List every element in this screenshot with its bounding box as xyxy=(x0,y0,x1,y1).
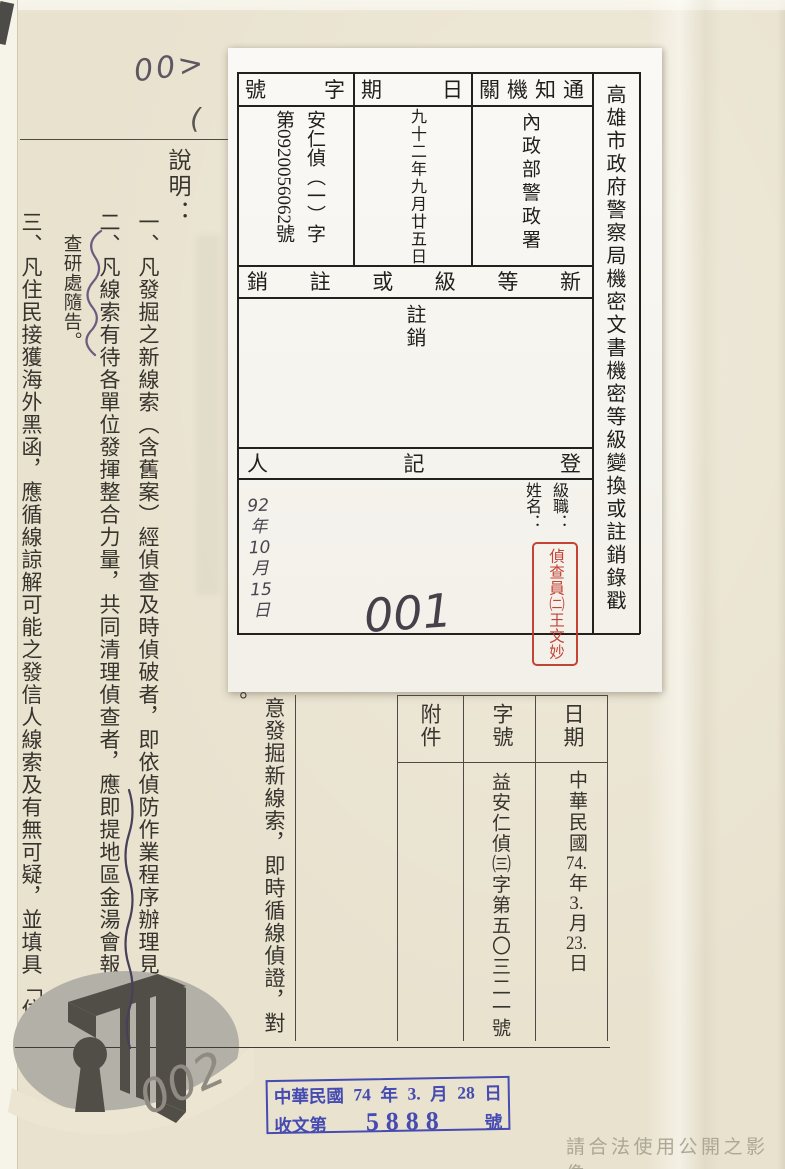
table-docno-value: 益安仁偵㈢字第五〇三二一號 xyxy=(486,772,513,1039)
received-stamp-line2: 收文第 5888 號 xyxy=(268,1105,508,1139)
card-rule xyxy=(353,72,355,265)
card-docno-value: 安仁偵（一）字 第0920056062號 xyxy=(268,110,330,268)
card-header-registrar: 人記登 xyxy=(247,447,581,478)
table-rule xyxy=(607,695,608,1041)
table-date-value: 中華民國74.年3.月23.日 xyxy=(563,770,590,974)
handwritten-card-date: 92 年 10 月 15 日 xyxy=(242,495,278,622)
card-title: 高雄市政府警察局機密文書機密等級變換或註銷錄戳 xyxy=(600,84,629,624)
received-stamp-line1: 中華民國 74 年 3. 月 28 日 xyxy=(268,1078,508,1109)
doc-top-rule xyxy=(20,139,228,140)
doc-fragment-column: 意發掘新線索，即時循線偵證，對 xyxy=(259,697,289,1035)
table-rule xyxy=(535,695,536,1041)
doc-column-rule xyxy=(295,695,296,1041)
card-rule xyxy=(471,72,473,265)
doc-item-3: 三、凡住民接獲海外黑函，應循線諒解可能之發信人線索及有無可疑，並填具「住 xyxy=(16,211,46,1021)
scanned-archive-page: 說明： 一、凡發掘之新線索（含舊案）經偵查及時偵破者，即依偵防作業程序辦理見告。… xyxy=(0,0,785,1169)
table-header-attachment: 附件 xyxy=(415,703,445,749)
card-rule xyxy=(237,72,239,634)
card-header-notify-org: 關機知通 xyxy=(479,72,584,105)
card-header-date: 期日 xyxy=(361,72,463,105)
card-rule xyxy=(592,72,594,634)
table-top-rule xyxy=(397,695,608,696)
doc-fragment-period: 。 xyxy=(221,691,251,712)
registrar-red-stamp: 偵查員㈡王文妙 xyxy=(532,542,578,666)
classification-stamp-card: 高雄市政府警察局機密文書機密等級變換或註銷錄戳 號字 期日 關機知通 安仁偵（一… xyxy=(228,48,662,692)
table-header-date: 日期 xyxy=(558,703,588,749)
table-rule xyxy=(463,695,464,1041)
footer-usage-note: 請合法使用公開之影像 xyxy=(566,1132,782,1169)
handwritten-doc-number: 001 xyxy=(362,583,453,643)
card-new-level-value: 註銷 xyxy=(400,304,429,350)
card-notify-org-value: 內政部警政署 xyxy=(516,112,543,260)
card-header-docno: 號字 xyxy=(245,72,345,105)
doc-heading: 說明： xyxy=(160,148,194,226)
table-rule xyxy=(397,695,398,1041)
card-rule xyxy=(237,478,593,480)
ink-bleed-ghost xyxy=(196,235,220,595)
handwritten-top-left-mark: 00> xyxy=(132,46,208,90)
card-rule xyxy=(237,297,593,299)
card-header-new-level: 銷註或級等新 xyxy=(247,265,581,297)
handwritten-paren-mark: ( xyxy=(190,102,201,135)
pen-wavy-line xyxy=(120,788,138,1050)
pen-bracket-mark xyxy=(79,228,107,360)
table-header-docno: 字號 xyxy=(487,703,517,749)
card-rule xyxy=(639,72,641,634)
card-date-value: 九十二年九月廿五日 xyxy=(404,108,428,270)
received-date-stamp: 中華民國 74 年 3. 月 28 日 收文第 5888 號 xyxy=(266,1076,511,1134)
card-rule xyxy=(237,105,593,107)
table-header-rule xyxy=(397,762,608,763)
